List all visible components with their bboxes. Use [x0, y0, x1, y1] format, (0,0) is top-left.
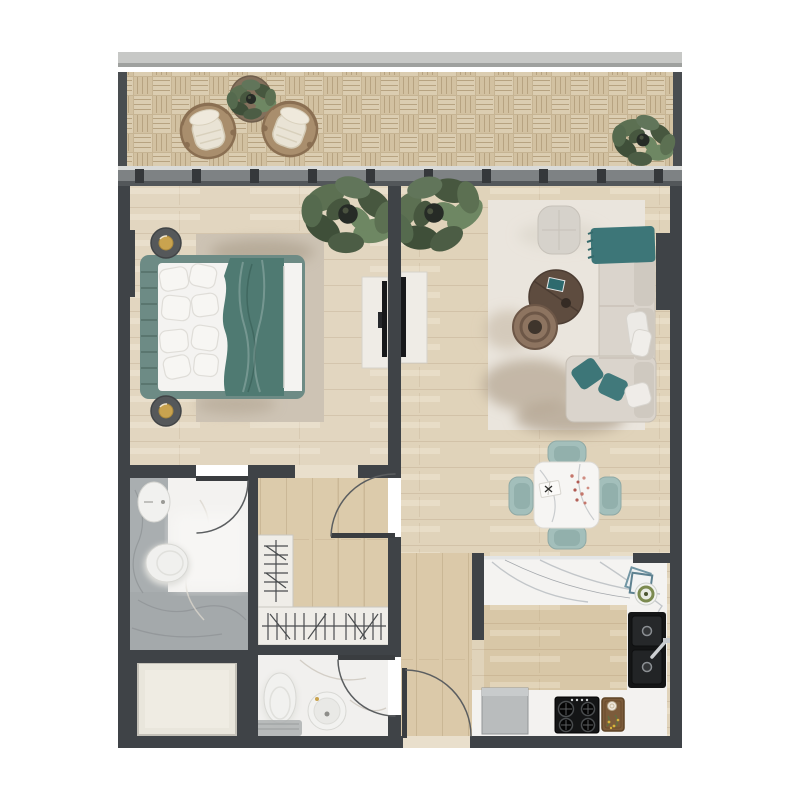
window-mullion	[250, 169, 259, 183]
window-mullion	[308, 169, 317, 183]
balcony	[118, 52, 683, 176]
coffee-table-center	[528, 320, 542, 334]
chair-seat	[514, 483, 530, 509]
floor-plan-canvas	[0, 0, 800, 800]
wall-kitchen-left	[472, 553, 484, 640]
toilet	[146, 544, 188, 582]
bedroom-door-threshold	[295, 465, 358, 478]
balcony-rail-edge	[118, 63, 682, 67]
door-leaf	[338, 655, 395, 660]
window-mullion	[366, 169, 375, 183]
wall-divider-lower	[388, 715, 401, 748]
sofa-throw	[590, 226, 655, 264]
window-mullion	[135, 169, 144, 183]
chair-seat	[602, 483, 618, 509]
wall-left-pillar	[130, 230, 135, 297]
dishwasher	[482, 688, 528, 734]
faucet-base	[663, 638, 670, 643]
basin-faucet	[161, 500, 165, 504]
pillow	[191, 292, 220, 317]
pillow	[193, 353, 219, 377]
bed-sheet-fold	[284, 263, 302, 391]
wall-right	[670, 186, 682, 748]
wall-kitchen-top-right	[633, 553, 670, 563]
cutting-board	[602, 698, 624, 731]
wall-divider-mid	[388, 537, 401, 657]
toilet	[264, 673, 296, 723]
basin-faucet	[315, 697, 319, 701]
wall-bath1-right	[248, 465, 258, 748]
door-leaf	[402, 668, 407, 738]
basin-oval	[138, 482, 170, 522]
pillow	[158, 266, 189, 293]
wall-divider-upper	[388, 186, 401, 478]
wall-right-pillar	[656, 233, 670, 310]
chair-seat	[554, 530, 580, 546]
window-mullion	[597, 169, 606, 183]
balcony-side-wall-left	[118, 72, 127, 168]
open-book	[539, 480, 561, 497]
living-tv	[401, 277, 406, 357]
door-leaf	[196, 476, 248, 481]
bathroom1-shower-zone	[130, 592, 248, 650]
window-wall	[118, 166, 682, 186]
sink-drain	[643, 663, 652, 672]
stove	[555, 697, 599, 733]
door-leaf	[331, 533, 395, 538]
window-mullion	[192, 169, 201, 183]
window-mullion	[482, 169, 491, 183]
wall-bottom-left	[118, 736, 403, 748]
kitchen-counter-edge	[484, 556, 633, 560]
window-mullion	[539, 169, 548, 183]
sink-drain	[643, 627, 652, 636]
pillow	[161, 295, 191, 322]
basin-bowl	[314, 698, 340, 724]
wall-bedroom-bath	[130, 465, 196, 478]
wall-bottom-right	[470, 736, 682, 748]
chair-seat	[554, 446, 580, 462]
basin-drain	[325, 712, 330, 717]
kitchen-sink	[628, 612, 670, 688]
kitchen-floor-planks	[484, 605, 627, 690]
bedroom-tv-mount	[378, 312, 382, 328]
floor-plan	[0, 0, 800, 800]
bowl	[561, 298, 571, 308]
bath-mat	[252, 720, 302, 736]
nightstand-bottom	[151, 396, 181, 426]
pillow	[190, 324, 219, 352]
pillow	[159, 329, 189, 354]
nightstand-top	[151, 228, 181, 258]
bedroom-tv	[382, 281, 387, 357]
corridor-floor-planks	[401, 553, 472, 736]
wall-bath1-bottom	[130, 650, 248, 663]
window-mullion	[654, 169, 663, 183]
wall-left	[118, 186, 130, 748]
wall-hall-bath2	[258, 645, 388, 655]
entry-threshold	[403, 736, 470, 748]
utility-box-inner	[145, 670, 229, 728]
balcony-side-wall-right	[673, 72, 682, 168]
